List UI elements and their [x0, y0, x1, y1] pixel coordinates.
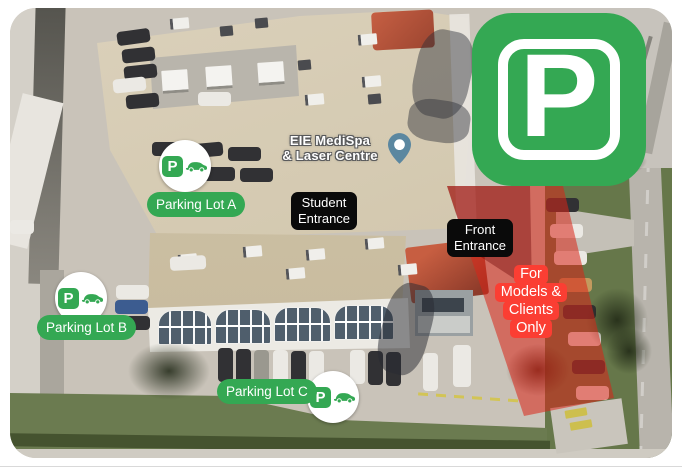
satellite-map: EIE MediSpa & Laser Centre Student Entra… [10, 8, 672, 458]
car [116, 285, 149, 299]
window-bay [215, 309, 271, 344]
car [218, 348, 233, 382]
garage-door [257, 61, 285, 86]
truck [10, 220, 34, 234]
restricted-label: For Models & Clients Only [488, 266, 574, 338]
restricted-line4: Only [510, 319, 552, 338]
tree [606, 328, 652, 374]
garage-door [205, 65, 233, 90]
hvac-unit [170, 17, 190, 30]
roof-vent [255, 17, 269, 28]
parking-sign-icon: P [472, 13, 646, 186]
yellow-curb [418, 392, 522, 402]
car [240, 168, 273, 182]
restricted-line3: Clients [503, 301, 559, 320]
hvac-unit [362, 75, 382, 88]
roof-vent [298, 59, 312, 70]
car [125, 93, 159, 110]
student-entrance-label: Student Entrance [291, 192, 357, 230]
place-name-line2: & Laser Centre [272, 148, 388, 163]
parking-lot-c-label: Parking Lot C [217, 379, 317, 404]
front-entrance-line2: Entrance [454, 238, 506, 254]
car [115, 300, 148, 314]
hvac-unit [305, 93, 325, 106]
tree [128, 342, 210, 400]
student-entrance-line2: Entrance [298, 211, 350, 227]
car-icon [333, 390, 356, 404]
parking-lot-a-label: Parking Lot A [147, 192, 245, 217]
parking-lot-b-label: Parking Lot B [37, 315, 136, 340]
car [236, 349, 251, 383]
parking-sign-letter: P [472, 13, 646, 186]
hvac-unit [398, 263, 418, 276]
garage-door [161, 69, 189, 94]
roof-vent [220, 25, 234, 36]
van [453, 345, 471, 387]
parking-p-icon: P [162, 156, 183, 177]
car-icon [81, 291, 104, 305]
window-bay [274, 307, 331, 342]
car-icon [185, 159, 208, 173]
restricted-line1: For [514, 265, 548, 284]
student-entrance-line1: Student [298, 195, 350, 211]
front-entrance-label: Front Entrance [447, 219, 513, 257]
car [423, 353, 438, 391]
place-pin-icon[interactable] [388, 133, 411, 164]
roof-vent [368, 93, 382, 104]
hvac-unit [358, 33, 378, 46]
place-label[interactable]: EIE MediSpa & Laser Centre [272, 133, 388, 163]
parking-p-icon: P [58, 288, 79, 309]
parking-lot-a-marker[interactable]: P [159, 140, 211, 192]
hvac-unit [243, 245, 263, 258]
restricted-line2: Models & [495, 283, 567, 302]
hvac-unit [286, 267, 306, 280]
van [170, 255, 207, 271]
screenshot-frame: EIE MediSpa & Laser Centre Student Entra… [0, 0, 682, 467]
front-entrance-line1: Front [454, 222, 506, 238]
window-bay [158, 310, 212, 345]
hvac-unit [306, 248, 326, 261]
car [198, 92, 231, 106]
place-name-line1: EIE MediSpa [272, 133, 388, 148]
hvac-unit [365, 237, 385, 250]
car [228, 147, 261, 161]
